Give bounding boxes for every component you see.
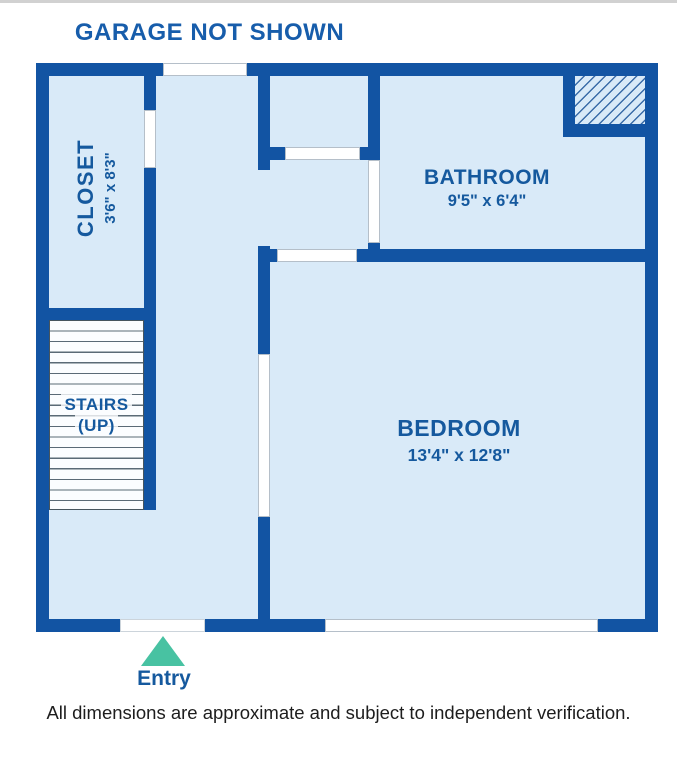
bedroom-dimensions: 13'4" x 12'8" <box>339 445 579 466</box>
closet-right-wall-upper <box>144 76 156 110</box>
top-gray-bar <box>0 0 677 3</box>
hatched-area <box>575 76 645 124</box>
closet-bottom-wall <box>36 308 156 320</box>
bathroom-name: BATHROOM <box>367 166 607 190</box>
closet-dimensions: 3'6" x 8'3" <box>103 139 120 237</box>
bedroom-label: BEDROOM 13'4" x 12'8" <box>339 415 579 466</box>
wall-left <box>36 63 49 632</box>
window-bottom-opening <box>325 619 598 632</box>
entry-label: Entry <box>104 667 224 691</box>
closet-label: CLOSET 3'6" x 8'3" <box>49 93 144 283</box>
page: { "page": { "title": "GARAGE NOT SHOWN",… <box>0 0 677 768</box>
stairs-label: STAIRS <box>61 394 131 415</box>
closet-door-opening <box>144 110 156 168</box>
hall-wall-lower <box>258 517 270 619</box>
stairs-direction-label: (UP) <box>75 415 118 436</box>
bathroom-left-wall <box>368 76 380 147</box>
wall-right <box>645 63 658 632</box>
closet-name: CLOSET <box>74 139 100 237</box>
disclaimer-text: All dimensions are approximate and subje… <box>0 702 677 724</box>
bathroom-dimensions: 9'5" x 6'4" <box>367 192 607 211</box>
vestibule-door-opening <box>285 147 360 160</box>
entry-arrow-icon <box>141 636 185 666</box>
window-top-opening <box>163 63 247 76</box>
stairs: STAIRS (UP) <box>49 320 144 510</box>
hall-wall-middle <box>258 246 270 354</box>
bathroom-label: BATHROOM 9'5" x 6'4" <box>367 166 607 211</box>
hatch-bottom-wall <box>563 124 658 137</box>
bedroom-side-door-opening <box>258 354 270 517</box>
closet-right-wall-lower <box>144 168 156 510</box>
bedroom-name: BEDROOM <box>339 415 579 442</box>
plan-title: GARAGE NOT SHOWN <box>36 19 383 47</box>
entry-door-opening <box>120 619 205 632</box>
bedroom-top-door-opening <box>277 249 357 262</box>
floor-plan: STAIRS (UP) CLOSET 3'6" x 8'3" BATHROOM … <box>36 63 658 632</box>
